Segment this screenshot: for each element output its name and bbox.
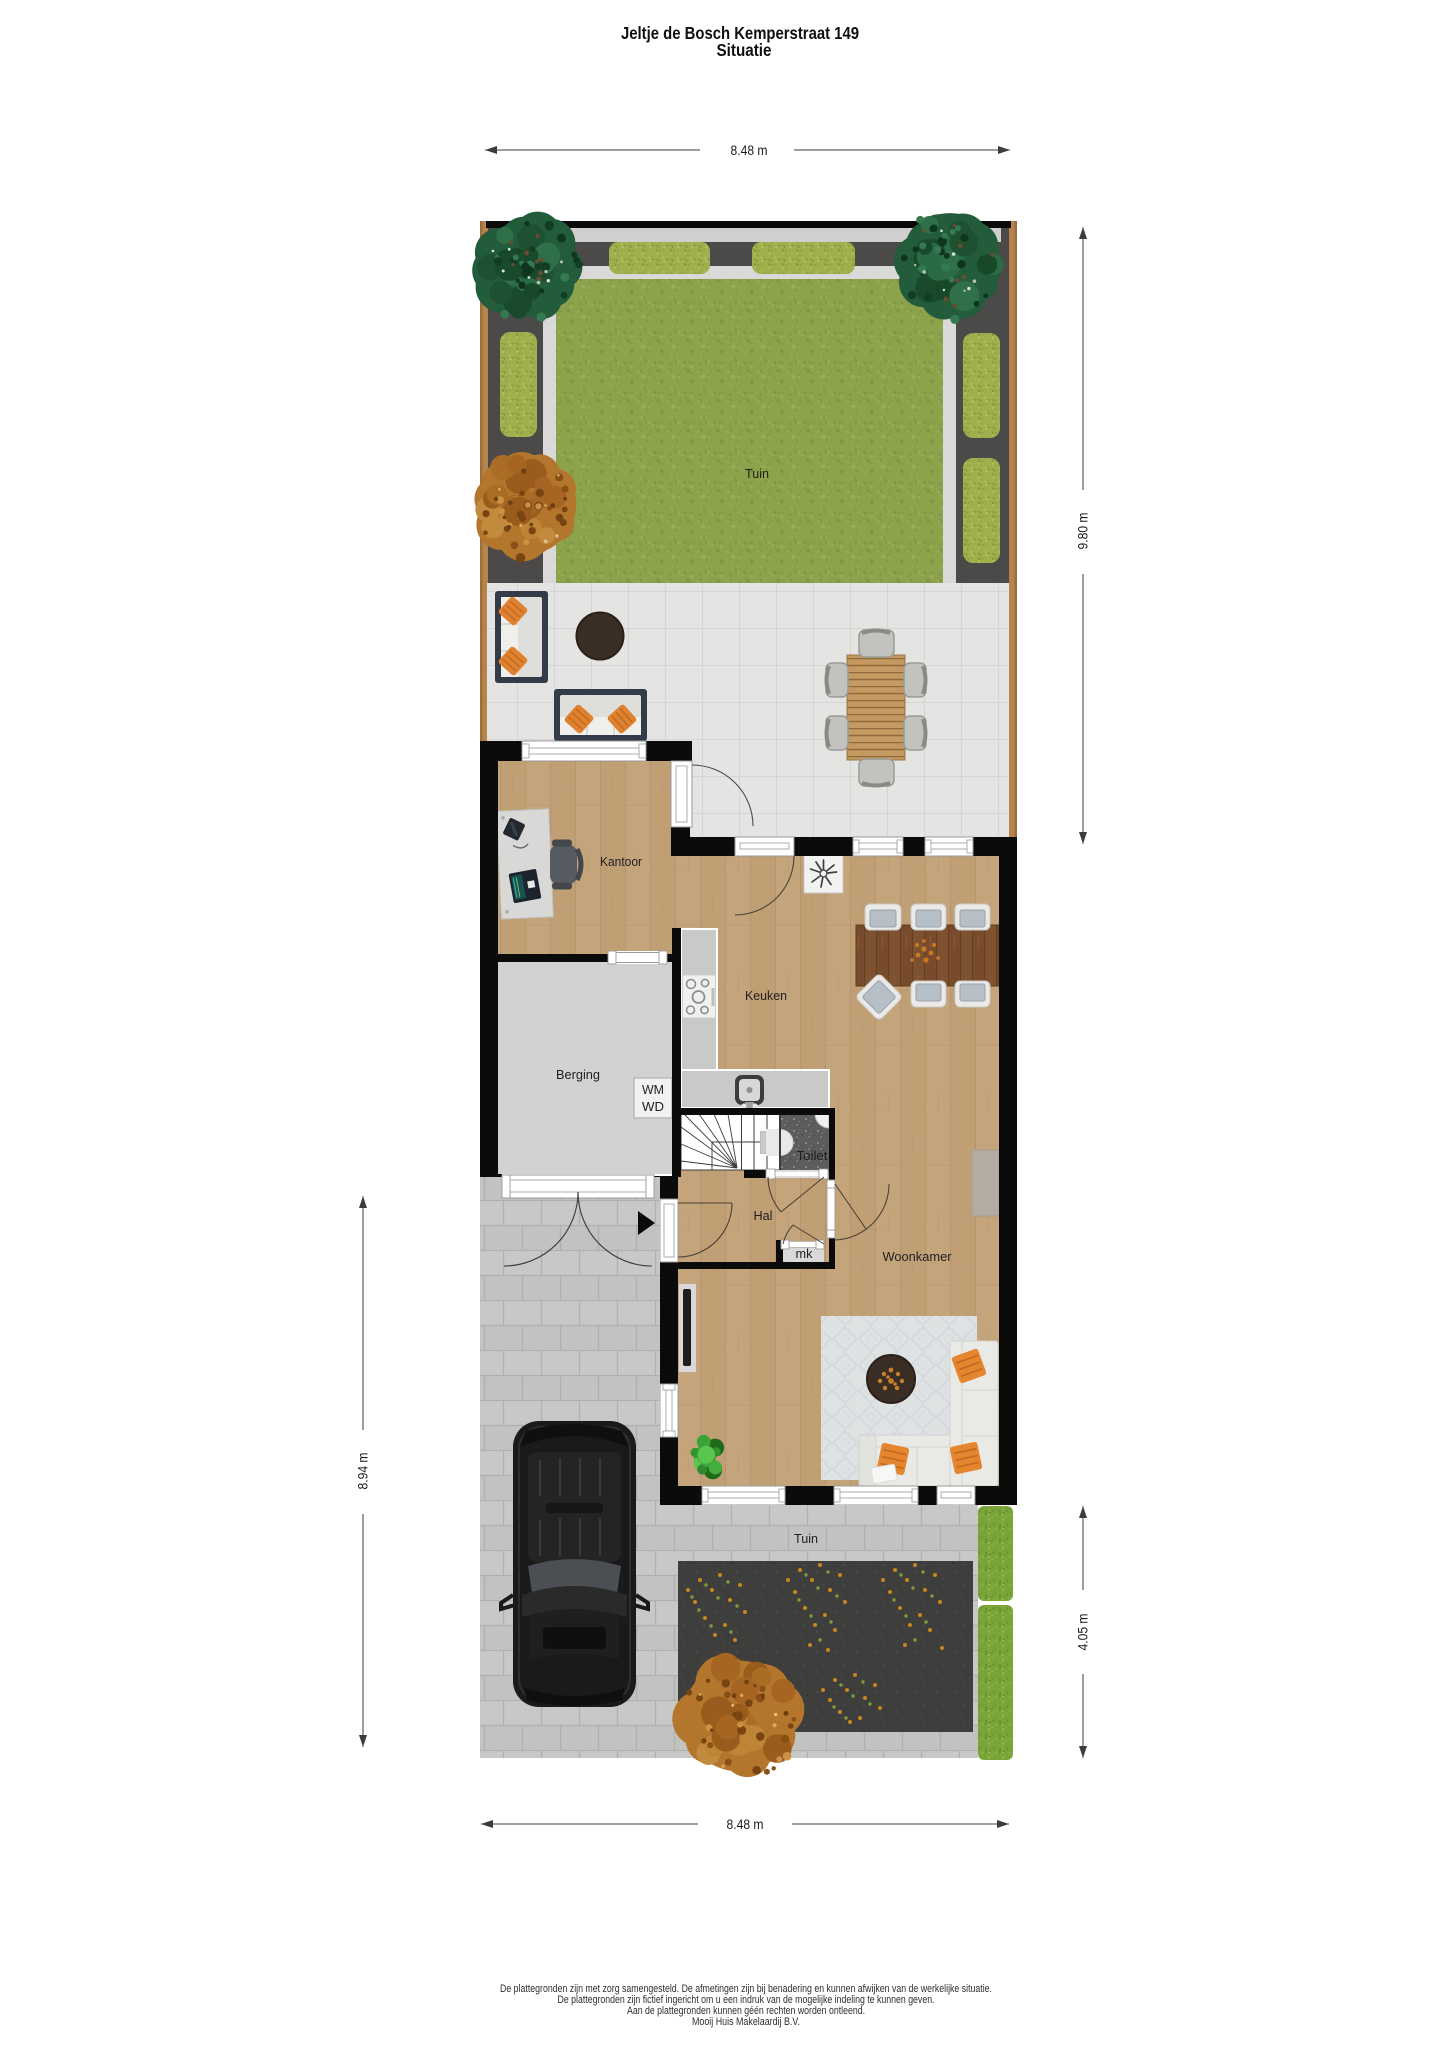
svg-text:Hal: Hal xyxy=(754,1209,773,1223)
svg-text:Keuken: Keuken xyxy=(745,989,787,1003)
svg-text:Mooij Huis Makelaardij B.V.: Mooij Huis Makelaardij B.V. xyxy=(692,2016,800,2028)
svg-text:9.80 m: 9.80 m xyxy=(1076,513,1091,550)
svg-text:Kantoor: Kantoor xyxy=(600,855,642,869)
svg-text:Woonkamer: Woonkamer xyxy=(883,1250,952,1264)
svg-text:8.48 m: 8.48 m xyxy=(727,1817,764,1832)
svg-text:8.48 m: 8.48 m xyxy=(731,143,768,158)
svg-text:4.05 m: 4.05 m xyxy=(1076,1614,1091,1651)
svg-text:Toilet: Toilet xyxy=(797,1149,829,1163)
svg-text:WD: WD xyxy=(642,1100,664,1114)
svg-text:mk: mk xyxy=(796,1247,814,1261)
svg-text:Situatie: Situatie xyxy=(717,40,772,60)
svg-text:8.94 m: 8.94 m xyxy=(356,1453,371,1490)
svg-text:Berging: Berging xyxy=(556,1068,600,1082)
svg-text:Tuin: Tuin xyxy=(794,1532,818,1546)
svg-text:WM: WM xyxy=(642,1083,664,1097)
svg-text:Tuin: Tuin xyxy=(745,467,769,481)
